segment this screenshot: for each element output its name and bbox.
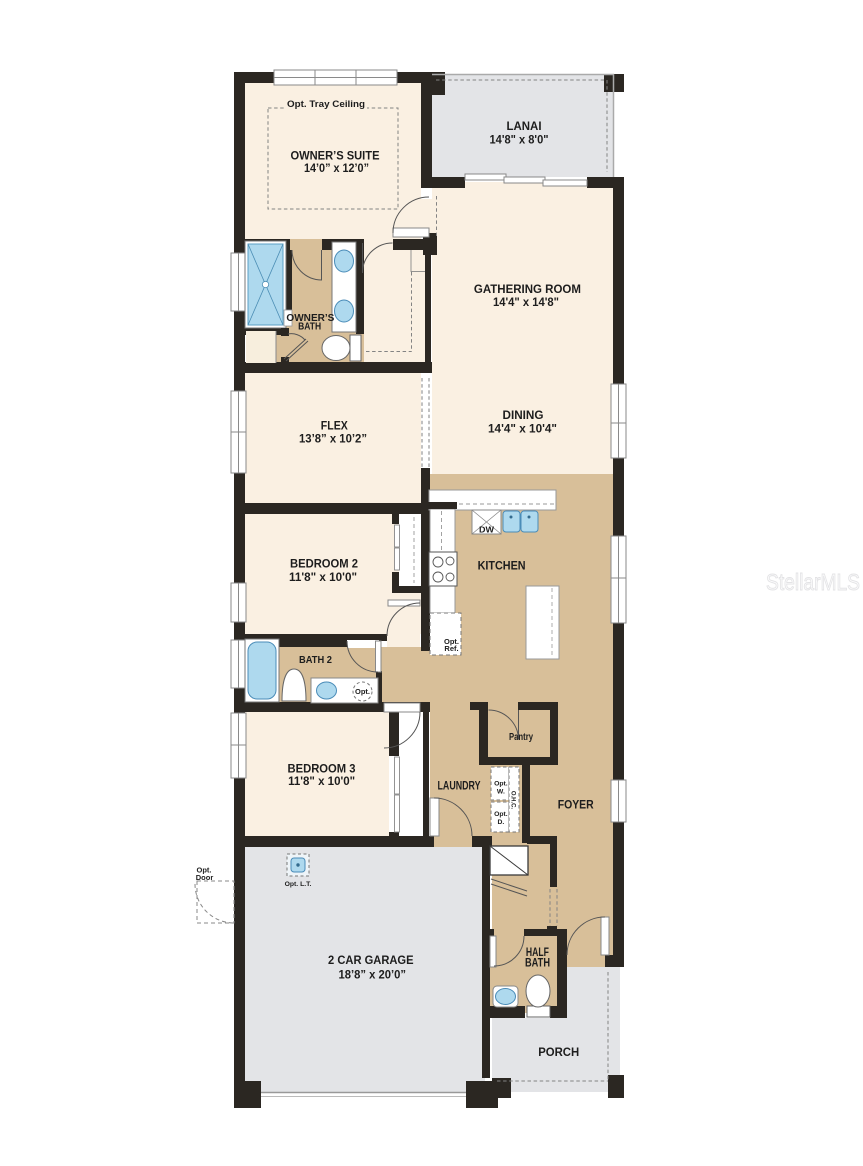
svg-text:GATHERING ROOM: GATHERING ROOM (474, 282, 581, 296)
svg-text:KITCHEN: KITCHEN (478, 558, 526, 572)
svg-text:Opt.: Opt. (494, 781, 508, 788)
svg-text:14'8" x 8'0": 14'8" x 8'0" (490, 133, 549, 147)
svg-text:14’0” x 12’0”: 14’0” x 12’0” (304, 161, 369, 175)
svg-text:DINING: DINING (503, 408, 544, 422)
svg-text:18’8” x 20’0”: 18’8” x 20’0” (339, 967, 407, 981)
svg-text:W.: W. (497, 789, 505, 796)
svg-text:Pantry: Pantry (509, 732, 533, 743)
svg-text:DW: DW (479, 525, 495, 535)
svg-text:Ref.: Ref. (444, 644, 458, 653)
svg-text:11'8" x 10'0": 11'8" x 10'0" (288, 774, 355, 788)
svg-text:14'4" x 14'8": 14'4" x 14'8" (493, 295, 559, 309)
svg-text:FOYER: FOYER (558, 798, 594, 812)
svg-text:LANAI: LANAI (507, 119, 542, 133)
svg-text:11'8" x 10'0": 11'8" x 10'0" (289, 570, 357, 584)
svg-text:BEDROOM 2: BEDROOM 2 (290, 557, 358, 571)
svg-text:Opt. L.T.: Opt. L.T. (285, 881, 312, 888)
svg-text:2 CAR GARAGE: 2 CAR GARAGE (328, 953, 414, 967)
svg-text:PORCH: PORCH (538, 1045, 579, 1059)
svg-text:Opt.: Opt. (355, 687, 370, 696)
svg-text:LAUNDRY: LAUNDRY (438, 778, 481, 792)
svg-text:Opt. Tray Ceiling: Opt. Tray Ceiling (287, 99, 365, 109)
svg-text:13’8” x 10’2”: 13’8” x 10’2” (299, 432, 367, 446)
svg-text:FLEX: FLEX (321, 419, 349, 433)
svg-text:D.: D. (497, 819, 504, 826)
svg-text:14'4" x 10'4": 14'4" x 10'4" (488, 422, 557, 436)
svg-text:Door: Door (196, 873, 214, 882)
svg-text:BATH: BATH (298, 321, 321, 333)
svg-text:StellarMLS: StellarMLS (766, 569, 860, 595)
svg-text:BATH: BATH (525, 958, 550, 970)
svg-text:O.H.C.: O.H.C. (510, 791, 516, 810)
svg-text:Opt.: Opt. (494, 811, 508, 818)
svg-text:BATH 2: BATH 2 (299, 654, 332, 666)
